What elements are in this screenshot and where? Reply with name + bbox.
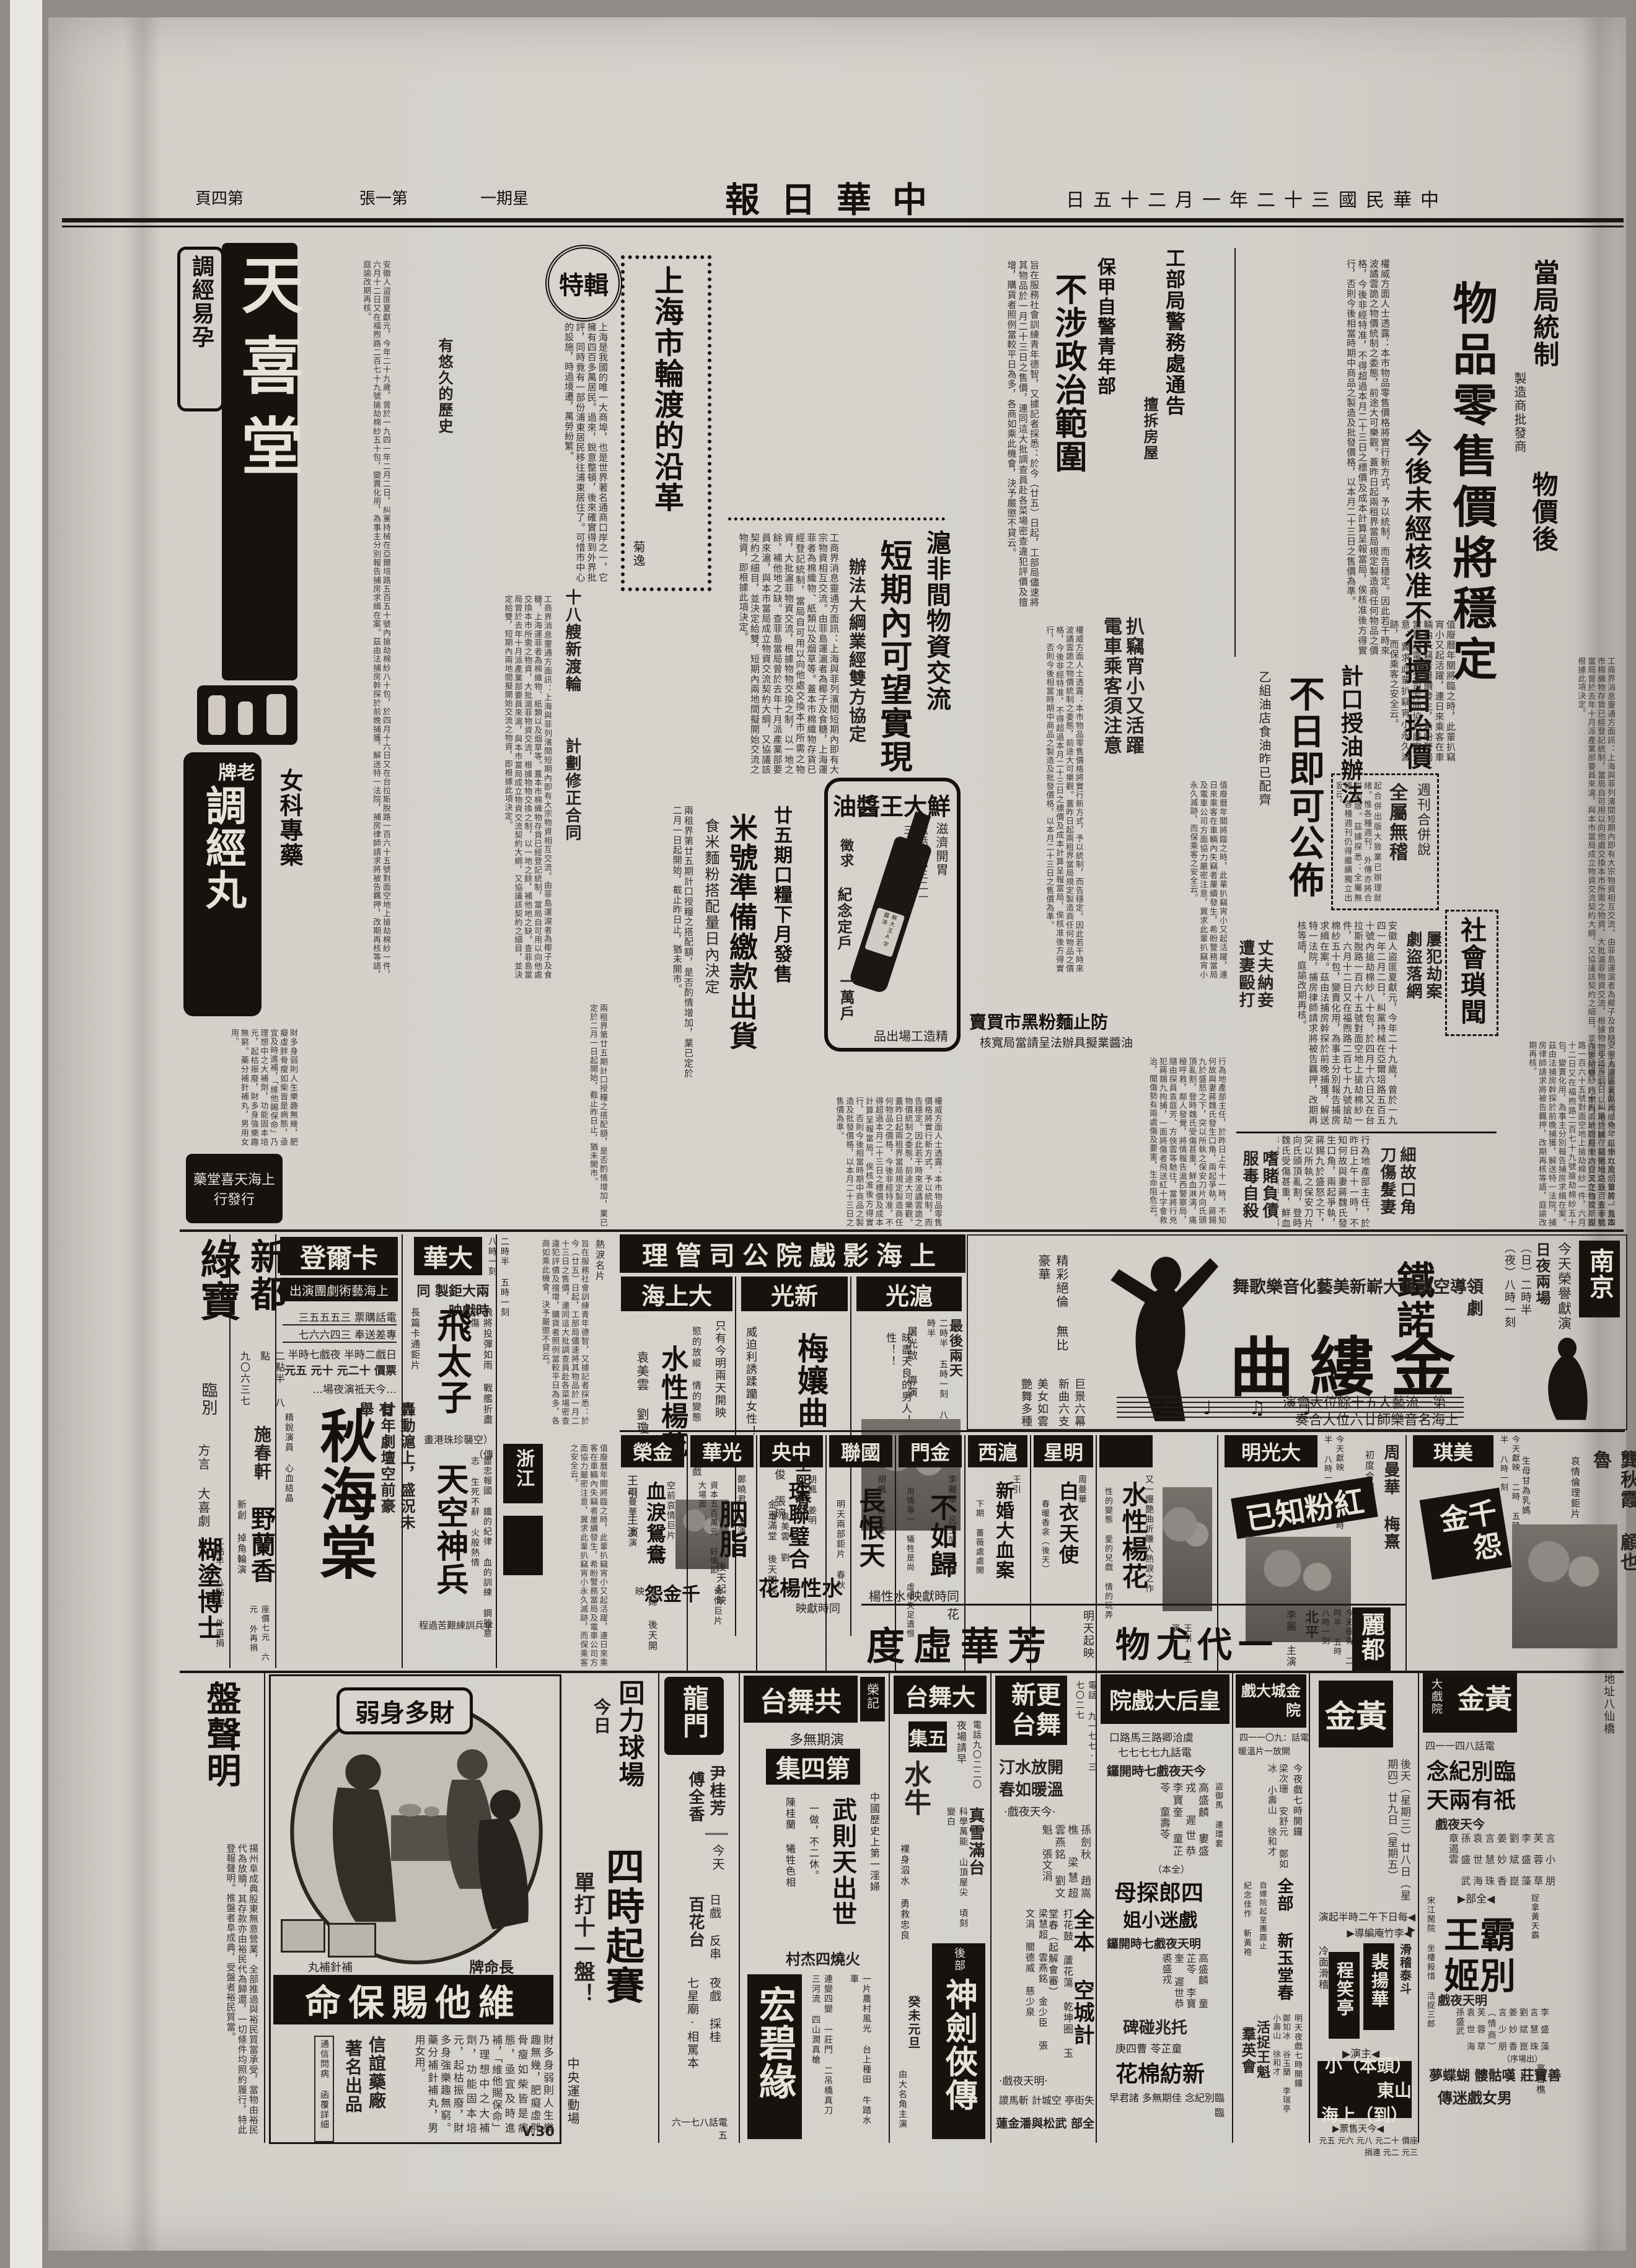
gong-sub: 一做，不二休。 — [806, 1803, 820, 1902]
geng-comfort1: 開放水汀 — [999, 1755, 1063, 1778]
theater-dahua: 大華 — [414, 1237, 482, 1275]
c1-coming: 蕩婦 後天開映 — [633, 1586, 659, 1661]
geng-play2b: 全部 武松與潘金蓮 — [995, 2114, 1094, 2131]
longmen-night2: 七星廟·相罵本 — [684, 1977, 701, 2094]
soy-ad: 鮮大王醬油 滋濟開胃 電話三七三二一三 鮮大王A字醬油 徵求 紀念定戶 一萬戶 … — [824, 778, 961, 1052]
huili-big: 四時起賽 — [594, 1847, 649, 2033]
queen-tmrw: 明天夜戲七時開鑼 — [1107, 1935, 1201, 1951]
lido-coming-film: 芳華虛度 — [866, 1615, 1055, 1671]
carlton-name: 卡爾登 — [300, 1237, 378, 1275]
rice-kicker: 廿五期口糧下月發售 — [767, 806, 794, 1010]
gong-fx: 連變四變 一莊門 二吊橋真刀 三河流 四山澗真槍 — [809, 1974, 834, 2129]
soy-campaign1: 徵求 — [835, 838, 855, 882]
theater-gengxin: 更新舞台 — [995, 1676, 1067, 1745]
gong-rural: 一片農村風光 台上種田 牛踏水車 — [848, 1974, 873, 2129]
carlton-prices: 票價 十二元 十元 五元 — [283, 1362, 397, 1378]
section-rule — [1236, 1132, 1497, 1133]
theater-gongwutai: 共舞台 — [744, 1676, 858, 1723]
society-headline: 細故口角 — [1396, 1146, 1418, 1227]
longmen-phone: 電話八七一六五 — [666, 2116, 728, 2142]
c2-stars: 鄭曉君 主演 — [735, 1475, 747, 1586]
c9-stars: 周曼華 梅熹 — [1379, 1444, 1402, 1568]
body-text-column: 安徽人盜匪夏獻元，今年二十九歲，曾於一九四一年二月二日，糾黨持械在亞爾培路五百五… — [1274, 921, 1398, 1125]
lido-place: 北平 — [1300, 1610, 1320, 1653]
huili-note: 單打十一盤！ — [568, 1871, 598, 2045]
body-text-column: 行為地產部主任，於昨日上午十一時，不知何故與妻蔣魏氏發生口角，兩起爭執，蔣錫九於… — [1278, 1135, 1371, 1228]
theater-daguangming: 大光明 — [1225, 1435, 1317, 1467]
theater-huxi: 滬西 — [968, 1435, 1027, 1467]
dahua-film1-note: 長篇卡通鉅片 — [409, 1308, 422, 1413]
queen-coming2: 新紡棉花 — [1115, 2056, 1205, 2088]
gengxin-name: 更新舞台 — [1001, 1681, 1061, 1740]
feature-badge: 特輯 — [545, 245, 622, 322]
gold-play2b: 男女戲迷傳 — [1438, 2086, 1512, 2108]
tianxi-slogan-box: 調經易孕 — [177, 247, 224, 411]
vita-maker2: 著名出品 — [340, 2039, 365, 2132]
gong-play: 武則天出世 — [824, 1797, 860, 1940]
gold-addr: 地址八仙橋 — [1600, 1673, 1616, 1760]
huili-when: 今日 — [589, 1698, 613, 1754]
cinema-company-banner: 上海影戲院公司管理 — [620, 1234, 965, 1273]
dawu-date: 癸未元旦 — [905, 1995, 923, 2064]
gold-bill2: 冷面滑稽 — [1315, 1946, 1330, 2026]
rice-subhead: 食米麵粉搭配量日內決定 — [700, 818, 722, 1022]
smc-notice-headline: 工部局警務處通告 — [1160, 248, 1189, 514]
theater-dashanghai: 大上海 — [621, 1277, 732, 1311]
longmen-star2: 傅全香 — [684, 1771, 707, 1839]
c4-stars: 胡楓 呂玉堃 — [875, 1475, 887, 1574]
jincheng-play1: 全部 新玉堂春 — [1273, 1878, 1296, 2002]
tianxi-store: 天喜堂 — [222, 253, 312, 662]
theater-huangjin: 黃金 大戲院 — [1423, 1673, 1517, 1733]
body-text-column: 揚州阜成典股東無意營業，全部推過與裕民質當承受，當物由裕民代為放贖，其存款亦由裕… — [186, 1844, 259, 2135]
lido-star: 李麗 主演 — [1283, 1610, 1298, 1672]
theater-guolian: 國聯 — [829, 1435, 892, 1467]
body-text-column: 財多身弱則人生樂趣無幾，肥癡虛胖骨瘦如柴皆是病態，亟宜及時進補，「維他賜保命」乃… — [401, 2034, 553, 2134]
gold-guest: 高雪樵 — [1534, 2064, 1547, 2125]
c10-film: 千金怨 — [1427, 1496, 1504, 1571]
carlton-cast: 精銳演員 心血結晶 — [283, 1413, 295, 1549]
zhongyang-name: 中央 — [772, 1437, 811, 1466]
longmen-night: 夜戲 採桂 — [706, 1977, 723, 2051]
gold-full: ◀全部▶ — [1458, 1890, 1495, 1905]
pan-title: 盤聲明 — [196, 1681, 246, 1829]
gong-episode: 第四集 — [776, 1749, 850, 1785]
longmen-star1: 尹桂芳 — [705, 1765, 728, 1835]
carlton-phone2: 專差送奉 三四六六七 — [283, 1326, 397, 1343]
dahua-film2: 天空神兵 — [426, 1462, 473, 1605]
soy-brand: 鮮大王醬油 — [833, 788, 951, 822]
xindu-times: 二點半 八點 — [257, 1351, 286, 1413]
c10-film-banner: 千金怨 — [1420, 1488, 1512, 1580]
soy-campaign2: 紀念定戶 — [833, 887, 855, 967]
geng-tmrw: ·明天夜戲· — [999, 2072, 1048, 2088]
soy-maker: 精造工場出品 — [837, 1026, 948, 1044]
dashanghai-name: 大上海 — [641, 1277, 712, 1311]
gold-star2: 裴揚華 — [1366, 1953, 1391, 2021]
c2-note: 奇情巨片 — [711, 1586, 724, 1661]
body-text-column: 權威方面人士透露：本市物品零售價格將實行新方式，予以統制，而告穩定。因此若干時來… — [959, 626, 1083, 973]
queen-today: 今天夜戲七時開鑼 — [1107, 1761, 1206, 1779]
queen-addr: 虞洽卿路三馬路口 — [1109, 1729, 1194, 1744]
nanjing-sched3: （日）二時半 — [1517, 1242, 1533, 1335]
dahua-film1: 飛太子 — [426, 1308, 477, 1425]
society-headline: 劇盜落網 — [1402, 931, 1425, 1011]
dancer-silhouette-image — [1527, 1332, 1607, 1425]
geng-today: ·今天夜戲· — [1004, 1803, 1055, 1819]
weekly-merger-box: 週刊合併說 全屬無稽 起合併出版大致業已辦理就緒。惟各種週刊，外傳亦將合併出版。… — [1331, 773, 1439, 910]
exchange-headline1: 滬非間物資交流 — [918, 530, 954, 728]
huangjin-name2: 黃金 — [1325, 1692, 1387, 1736]
queen-full: （全本） — [1153, 1863, 1190, 1876]
gold-tmrw: 明天夜戲 — [1438, 1990, 1487, 2008]
carlton-play: 秋海棠 — [302, 1407, 385, 1667]
flour-headline: 防止麵粉黑市買賣 — [959, 1009, 1108, 1034]
gong-note: 演期無多 — [751, 1729, 844, 1749]
newspaper-title: 中華日報 — [725, 172, 948, 222]
body-text-column: 值廢曆年關將臨之時，此輩扒竊宵小又起活躍，連日來乘客在車輛內失竊者屢續發生，希盼… — [1388, 620, 1456, 762]
c8-note: 又一慢艷曲折賺人熱淚之作 — [1143, 1475, 1155, 1636]
society-headline: 嗜賭負債 — [1258, 1150, 1281, 1231]
nanjing-sched4: （夜）八時一刻 — [1501, 1242, 1517, 1335]
queen-play1c: 盜御馬 連環套 — [1212, 1782, 1224, 1894]
society-header-box: 社會瑣聞 — [1445, 910, 1498, 1036]
medicine-package — [281, 1919, 325, 1953]
body-text-column: 行為地產部主任，於昨日上午十一時，不知何故與妻蔣魏氏發生口角，兩起爭執，蔣錫九於… — [959, 1057, 1226, 1224]
gong-cast: 陳桂蘭 犧牲色相 — [782, 1797, 797, 1921]
jinrong-name: 金榮 — [633, 1437, 672, 1466]
gold-star1: 程笑亭 — [1332, 1961, 1357, 2029]
body-text-column: 財多身弱則人生樂趣無幾，肥癡虛胖骨瘦如柴皆是病態，亟宜及時進補，「維他賜保命」乃… — [180, 1029, 297, 1146]
film-strip — [10, 0, 42, 2268]
society-headline: 遭妻毆打 — [1234, 939, 1257, 1020]
geng-phone: 電話 九一七七·三七〇二七 — [1073, 1681, 1098, 1774]
jincheng-note: 開放一片溫暖 — [1238, 1745, 1290, 1757]
queen-cast1: 高盛麟 婁盛戎 遲世恭 李寶奎 童芷苓 童壽苓 — [1112, 1782, 1208, 1857]
dawu-note: 夜場請早 — [953, 1720, 968, 1782]
body-text-column: 旨在服務社會訓練青年德智，又據記者採悉：於今（廿五）日起，工部局儘速將其物品於一… — [502, 1239, 589, 1425]
tianxi-brand: 老牌 — [190, 757, 255, 785]
tianxi-footer-panel: 上海天喜堂藥行發行 — [186, 1154, 283, 1223]
gong-play2: 火燒四杰村 — [749, 1947, 860, 1969]
carlton-troupe: 上海藝術劇團演出 — [289, 1281, 389, 1299]
meiqi-name: 美琪 — [1433, 1437, 1473, 1466]
xindu-prices: 座價七元 六元 外再捐 — [247, 1605, 270, 1667]
lead-kicker-small: 製造商批發商 — [1511, 372, 1529, 465]
society-headline: 刀傷髮妻 — [1376, 1146, 1399, 1227]
gold-director: ◀李竹庵編導▶ — [1319, 1925, 1412, 1940]
page-number: 第四頁 — [195, 186, 244, 209]
ferry-title: 上海市輪渡的沿革 — [644, 265, 688, 538]
theater-zhejiang: 浙江 — [503, 1444, 543, 1503]
feature-badge-label: 特輯 — [559, 265, 609, 301]
xinguang-name: 新光 — [771, 1277, 818, 1311]
xindu-star: 施春軒 — [249, 1425, 274, 1493]
ferry-subhead3: 有悠久的歷史 — [434, 338, 455, 449]
body-text-column: 起合併出版大致業已辦理就緒。惟各種週刊，外傳亦將合併出版。茲據探悉：全屬無稽，各… — [1337, 781, 1381, 902]
nanjing-sched2: 日夜兩場 — [1531, 1242, 1553, 1329]
queen-cast2: 高盛麟 童芷苓 李寶奎 遲世恭 裘盛戎 — [1112, 1953, 1208, 2009]
geng-cast1: 孫劍秋 趙嵩樵 梁慧超 雲燕銘 劉文魁 張文涓 — [1001, 1824, 1091, 1899]
body-text-column: 值廢曆年關將臨之時，此輩扒竊宵小又起活躍，連日來乘客在車輛內失竊者屢續發生，希盼… — [1109, 781, 1227, 979]
gold-cast1: 言小朋 芙蓉草 李盛藻 劉斌崑 姜妙香 言慧珠 袁世海 孫盛武 章遏雲 — [1425, 1833, 1555, 1886]
theater-xinguang: 新光 — [741, 1277, 848, 1311]
xindu-phone: 九〇六三七 — [237, 1351, 252, 1425]
body-text-column: 安徽人盜匪夏獻元，今年二十九歲，曾於一九四一年二月二日，糾黨持械在亞爾培路五百五… — [1500, 1041, 1615, 1227]
gong-tag: 中國歷史上第一淫婦 — [866, 1792, 881, 1941]
gold-farewell1: 臨別紀念 — [1427, 1754, 1516, 1786]
theater-queen: 皇后大戲院 — [1101, 1674, 1229, 1724]
flour-subhead: 油醬業擬具辦法呈請當局寬核 — [959, 1034, 1133, 1050]
society-headline: 服毒自殺 — [1238, 1150, 1261, 1231]
body-text-column: 權威方面人士透露：本市物品零售價格將實行新方式，予以統制，而告穩定。因此若干時來… — [1242, 259, 1391, 656]
movie-still-photo — [1163, 1487, 1212, 1611]
medicine-package — [328, 1923, 376, 1958]
exchange-headline2: 短期內可望實現 — [870, 539, 917, 787]
theater-lido: 麗都 — [1352, 1607, 1391, 1671]
smc-notice-sub: 擅拆房屋 — [1139, 397, 1161, 471]
masthead-rule — [62, 218, 1624, 222]
vita-ad: 財多身弱 補針補丸 長命牌 維他賜保命 財多身弱則人生樂趣無幾，肥癡虛胖骨瘦如柴… — [269, 1674, 561, 2144]
vita-maker: 信誼藥廠 — [364, 2036, 389, 2135]
movie-still-photo — [1512, 1524, 1617, 1648]
zhejiang-name: 浙江 — [509, 1449, 537, 1498]
newspaper-page: 第四頁 第一張 星期一 中華日報 中華民國三十二年一月二十五日 當局統制 製造商… — [0, 0, 1636, 2268]
jincheng-play1b: 自嫖院起至團圓止 — [1258, 1881, 1269, 1993]
huangjin-name-sub: 大戲院 — [1428, 1678, 1444, 1728]
soy-tagline: 滋濟開胃 — [933, 822, 951, 890]
jincheng-today: 今夜戲七時開鑼 — [1291, 1764, 1304, 1863]
hg-times: 二時半 五時一刻 八時半 — [925, 1319, 949, 1424]
lido-name: 麗都 — [1355, 1612, 1389, 1666]
queen-play2: 托兆碰碑 — [1123, 2015, 1187, 2038]
chain-rule — [728, 517, 945, 525]
gold-prices: 座價 十二元 八元 六元 五元 三元 二元 連捐 — [1313, 2134, 1418, 2158]
huili-venue: 中央運動場 — [564, 2057, 582, 2138]
huili-name: 回力球場 — [611, 1679, 649, 1828]
gold-order: （出場序） — [1502, 2052, 1542, 2064]
weekday-label: 星期一 — [480, 186, 529, 209]
vita-title: 財多身弱 — [355, 1693, 454, 1729]
body-text-column: 兩租界第廿五期計口授糧之搭配額，是否酌情增加，業已定於二月一日起開始，截止昨日止… — [620, 806, 694, 1078]
body-text-column: 工商界消息靈通方面訊：上海與菲列濱間短期內即有大宗物資相互交流。由菲島運滬者為椰… — [397, 595, 552, 979]
lead-kicker-2: 物價後 — [1524, 471, 1562, 632]
gold-side2: 捉拿黃天霸 — [1528, 1894, 1540, 1987]
longmen-today: 今天 — [709, 1844, 727, 1888]
carlton-phone1: 電話購票 三五五五三 — [283, 1309, 397, 1325]
tianxi-category: 女科專藥 — [273, 768, 307, 954]
fold-shadow — [124, 17, 161, 2251]
dahua-film2-sub: 傘兵訓練艱苦過程 — [407, 1619, 493, 1632]
c1-note: 空前哀情巨片 — [664, 1481, 677, 1580]
lvbao-note2: 方言 大喜劇 — [195, 1444, 213, 1531]
ferry-author: 菊逸 — [630, 540, 648, 584]
c1-stars: 周曼華 主演 — [626, 1487, 638, 1574]
ferry-title-box: 上海市輪渡的沿革 菊逸 — [621, 255, 711, 591]
soy-bottle-label: 鮮大王A字醬油 — [871, 911, 899, 954]
soy-bottle-image: 鮮大王A字醬油 — [848, 835, 933, 995]
queen-coming: 童芷苓 曹四庚 — [1115, 2040, 1182, 2055]
huguang-name: 滬光 — [886, 1277, 933, 1311]
nanjing-sched1: 今天榮譽獻演 — [1553, 1242, 1573, 1347]
gold-play3-line1: （頭本）小山東 — [1317, 2052, 1412, 2102]
oil-headline: 不日即可公佈 — [1278, 675, 1330, 942]
theater-box-unreadable — [503, 1516, 543, 1575]
tianxi-figures-image — [197, 685, 297, 745]
exchange-subhead: 辦法大綱業經雙方協定 — [844, 558, 869, 768]
queen-play1: 四郎探母 — [1114, 1875, 1203, 1907]
vita-mark: V.30 — [522, 2124, 555, 2140]
lvbao-note1: 臨別 — [197, 1382, 220, 1438]
society-headline: 屢犯劫案 — [1422, 931, 1445, 1011]
c4-coming: 明天兩部鉅片 春秋 — [834, 1500, 847, 1655]
gold-today: 今天夜戲 — [1435, 1814, 1485, 1832]
lido-coming: 明天起映 — [1080, 1610, 1096, 1672]
tianxi-slogan: 調經易孕 — [185, 255, 217, 397]
theater-dawutai: 大舞台 — [894, 1676, 987, 1714]
dawu-play: 神劍俠傳 — [936, 1978, 982, 2133]
theater-jincheng: 金城大戲院 — [1236, 1674, 1306, 1728]
theater-jinrong: 金榮 — [621, 1435, 684, 1467]
jincheng-name: 金城大戲院 — [1241, 1682, 1301, 1720]
dawu-episode: 五集 — [909, 1723, 946, 1751]
queen-play1b: 戲迷小姐 — [1123, 1905, 1197, 1932]
theater-carlton: 卡爾登 — [280, 1237, 398, 1275]
gongwutai-name: 共舞台 — [760, 1679, 842, 1719]
carlton-times: 日戲二時半 夜戲七時半 — [283, 1346, 397, 1361]
dawu-play-pre: 後部 — [951, 1947, 967, 1978]
longmen-day2: 百花台 — [684, 1896, 707, 1964]
vita-product: 維他賜保命 — [305, 1974, 522, 2026]
theater-nanjing: 南京 — [1579, 1241, 1620, 1317]
body-text-column: 值廢曆年關將臨之時，此輩扒竊宵小又起活躍，連日來乘客在車輛內失竊者屢續發生，希盼… — [552, 1444, 607, 1667]
masthead-rule-thin — [62, 226, 1624, 227]
tianxi-store-panel: 天喜堂 — [222, 243, 297, 680]
strip-note: 熱淚名片 — [594, 1239, 607, 1320]
theater-box-unreadable — [1099, 1435, 1153, 1467]
vita-note: 通信問病 函覆詳細 — [314, 2036, 334, 2142]
dahua-name: 大華 — [423, 1238, 473, 1274]
dawu-extra2: 裸身泅水 勇救忠良 — [899, 1844, 912, 1980]
lido-times: 今天祗有 二時半 五時 八時一刻 — [1319, 1609, 1354, 1673]
weekly-box-title2: 全屬無稽 — [1383, 783, 1410, 900]
nanjing-side3: 精彩絕倫 無比豪華 — [1035, 1254, 1071, 1360]
lead-kicker-1: 當局統制 — [1526, 259, 1563, 464]
daguangming-name: 大光明 — [1241, 1437, 1301, 1466]
jincheng-cast1: 梁次珊 安舒元 鄭如冰 小壽山 徐和才 — [1252, 1764, 1289, 1869]
queen-phone: 電話九七七七七 — [1118, 1744, 1192, 1759]
dawutai-name: 大舞台 — [905, 1678, 975, 1712]
column-rule — [1234, 248, 1236, 657]
body-text-column: 工商界消息靈通方面訊：上海與菲列濱間短期內即有大宗物資相互交流。由菲島運滬者為椰… — [731, 533, 840, 775]
jincheng-play1c: 紀念佳作 斬黃袍 — [1241, 1881, 1252, 1999]
section-rule — [180, 1229, 1624, 1232]
gold-later-dates: 後天（星期三）廿八日（星期四）廿九日（星期五） — [1361, 1759, 1410, 1901]
guanghua-name: 光華 — [702, 1437, 742, 1466]
c3-stars: 胡楓 姜明 — [806, 1475, 818, 1574]
geng-play2: 失街亭 空城計 斬馬謖 — [995, 2092, 1094, 2107]
gongwutai-owner: 榮記 — [864, 1683, 882, 1715]
mingxing-name: 明星 — [1044, 1437, 1083, 1466]
oil-subhead: 乙組油店食油昨已配齊 — [1256, 670, 1273, 918]
queen-farewell: 臨別紀念 佳期無多 諸君早臨 — [1107, 2090, 1225, 2119]
carlton-note: …今天祗演夜場… — [283, 1381, 397, 1396]
gold-cast2: 李盛藻 言慧珠 劉斌崑 姜妙香 言少朋（情商）芙蓉草 袁世海 孫盛武 — [1425, 2008, 1549, 2051]
geng-comfort2: 溫暖如春 — [999, 1777, 1063, 1800]
c3-coming: 金玉滿堂 後天開映 — [766, 1500, 779, 1655]
jinmen-name: 金門 — [910, 1437, 950, 1466]
gold-sale: ◀今天售票▶ — [1332, 2122, 1384, 2135]
theater-jinmen: 金門 — [899, 1435, 962, 1467]
c7-stars: 周曼華 — [1076, 1475, 1088, 1555]
nanjing-tagline: 領導空前偉大嶄新美藝化音樂歌舞劇 — [1229, 1277, 1484, 1320]
soy-campaign3: 一萬戶 — [835, 974, 857, 1029]
tianxi-product-panel: 老牌 調經丸 — [183, 752, 262, 1016]
theater-longmen: 龍門 — [664, 1677, 724, 1755]
dawu-phone: 電話九〇二二〇 — [970, 1720, 983, 1801]
society-header: 社會瑣聞 — [1453, 916, 1491, 1028]
tianxi-footer: 上海天喜堂藥行發行 — [191, 1169, 278, 1208]
huangjin-left-box: 黃金 — [1319, 1681, 1393, 1747]
lvbao-times: 二點半 八點半 外再捐 — [213, 1537, 226, 1661]
theater-meiqi: 美琪 — [1413, 1435, 1493, 1467]
jincheng-tmrw: 明天夜戲七時開鑼 — [1291, 2014, 1303, 2113]
lido-film: 一代尤物 — [1115, 1617, 1279, 1668]
xg-film: 梅孃曲 — [788, 1332, 833, 1444]
pickpocket-headline2: 電車乘客須注意 — [1097, 617, 1124, 765]
gong-play3: 宏碧緣 — [748, 1985, 802, 2128]
ferry-subhead2: 計劃修正合同 — [561, 737, 584, 861]
longmen-name: 龍門 — [675, 1685, 713, 1747]
dawu-fx2: 科學萬能 山頂屋尖 頃刻變白 — [944, 1807, 969, 1931]
rice-headline: 米號準備繳款出貨 — [721, 813, 762, 1079]
baojia-headline: 不涉政治範圍 — [1045, 273, 1091, 533]
body-text-column: 上海是我國的唯一大商埠，也是世界著名通商口岸之一，它擁有四百多萬居民。過來，銳意… — [460, 322, 609, 582]
vita-packages-label: 補針補丸 — [308, 1959, 353, 1975]
body-text-column: 權威方面人士透露：本市物品零售價格將實行新方式，予以統制，而告穩定。因此若干時來… — [620, 1097, 942, 1227]
nanjing-name: 南京 — [1581, 1248, 1617, 1310]
gold-farewell2: 祇有兩天 — [1427, 1782, 1516, 1814]
issue-date: 中華民國三十二年一月二十五日 — [1066, 185, 1448, 212]
geng-cast2: 梁慧超 雲燕銘 金少臣 張文涓 關德威 慈少泉 — [1024, 1909, 1050, 2057]
guolian-name: 國聯 — [841, 1437, 881, 1466]
baojia-kicker: 保甲自警青年部 — [1091, 257, 1118, 418]
edition-label: 第一張 — [359, 186, 408, 209]
c8-tag: 性的變態 愛的兒戲 情的玩弄 — [1102, 1487, 1114, 1648]
weekly-box-title: 週刊合併說 — [1412, 783, 1432, 900]
c5-stars: 李麗華 呂玉堃 主演 — [946, 1475, 958, 1586]
jincheng-play2b: 羣英會 — [1237, 2026, 1259, 2094]
theater-huguang: 滬光 — [856, 1277, 962, 1311]
body-text-column: 兩租界第廿五期計口授糧之搭配額，是否酌情增加，業已定於二月一日起開始，截止昨日止… — [297, 1004, 607, 1227]
huxi-name: 滬西 — [978, 1437, 1018, 1466]
longmen-day: 日戲 反串 — [706, 1894, 723, 1968]
music-notes: ♪♩♫♪ — [1154, 1397, 1352, 1419]
huangjin-name: 黃金 — [1458, 1677, 1512, 1716]
gold-bill1: 滑稽泰斗 — [1397, 1943, 1414, 2011]
dawu-extra3: 由大名角主演 — [896, 2070, 908, 2138]
xindu-film: 野蘭香 — [243, 1506, 279, 1599]
gold-phone: 電話八四一一四 — [1425, 1738, 1495, 1752]
c2-coming: 資本五百萬元 好情節 大場面 — [695, 1481, 719, 1586]
nanjing-ad: 南京 今天榮譽獻演 日夜兩場 （日）二時半 （夜）八時一刻 鐵諾 領導空前偉大嶄… — [967, 1234, 1627, 1430]
c6-stars: 王引 — [1010, 1475, 1023, 1562]
theater-mingxing: 明星 — [1034, 1435, 1093, 1467]
body-text-column: 旨在服務社會訓練青年德智，又據記者採悉：於今（廿五）日起，工部局儘速將其物品於一… — [959, 260, 1040, 607]
tianxi-product: 調經丸 — [193, 785, 252, 995]
theater-guanghua: 光華 — [690, 1435, 754, 1467]
dawu-extra: 水牛 — [895, 1760, 935, 1834]
